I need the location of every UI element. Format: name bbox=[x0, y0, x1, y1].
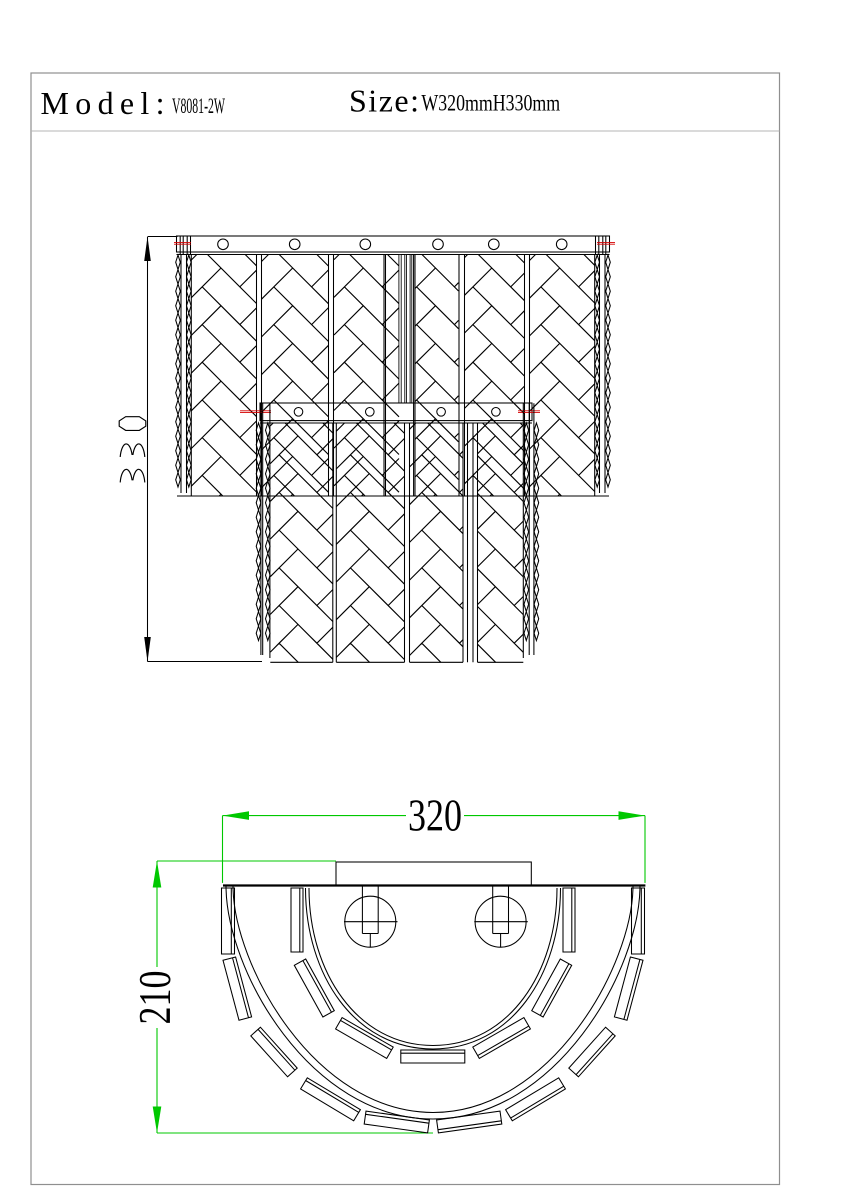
svg-text:W320mmH330mm: W320mmH330mm bbox=[421, 91, 560, 116]
svg-text:Size:: Size: bbox=[349, 83, 419, 119]
svg-text:Model:: Model: bbox=[41, 85, 165, 121]
svg-text:210: 210 bbox=[130, 971, 180, 1025]
svg-text:V8081-2W: V8081-2W bbox=[172, 93, 225, 118]
svg-text:320: 320 bbox=[408, 791, 462, 841]
